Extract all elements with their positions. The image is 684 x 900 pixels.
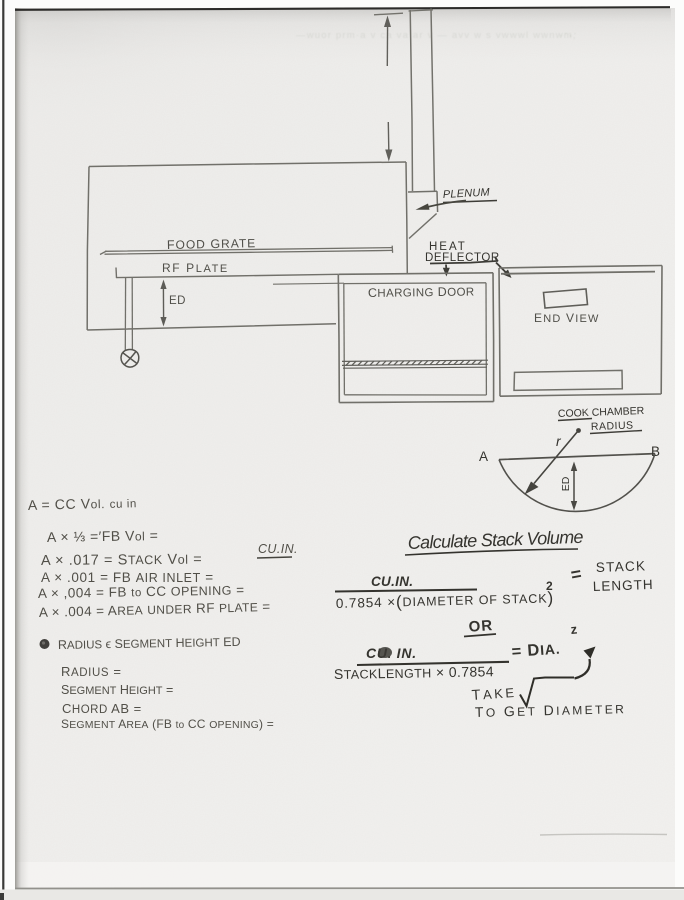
svg-text:2: 2	[546, 579, 553, 593]
svg-text:LENGTH: LENGTH	[593, 577, 654, 594]
svg-text:CHARGING DOOR: CHARGING DOOR	[368, 285, 475, 300]
svg-text:RF PLATE: RF PLATE	[162, 261, 229, 275]
svg-text:A: A	[479, 449, 488, 464]
svg-text:B: B	[651, 444, 660, 459]
svg-text:STACK: STACK	[596, 558, 647, 575]
svg-text:END VIEW: END VIEW	[534, 311, 600, 325]
svg-text:RADIUS =: RADIUS =	[61, 664, 122, 679]
svg-text:PLENUM: PLENUM	[443, 187, 491, 201]
svg-text:A × ⅓ =′FB Vol =: A × ⅓ =′FB Vol =	[47, 527, 159, 545]
svg-text:A × .017 = STACK Vol =: A × .017 = STACK Vol =	[41, 552, 203, 569]
svg-text:CHORD AB =: CHORD AB =	[62, 701, 142, 716]
svg-text:CU.IN.: CU.IN.	[371, 574, 413, 589]
svg-text:FOOD GRATE: FOOD GRATE	[167, 236, 257, 252]
svg-text:A × .001 = FB AIR INLET =: A × .001 = FB AIR INLET =	[41, 570, 214, 585]
svg-text:CU.IN.: CU.IN.	[258, 542, 298, 556]
svg-text:—wuor prm·a v ca va ar v — av: —wuor prm·a v ca va ar v — avv w s vwwwl…	[296, 30, 577, 41]
svg-text:SEGMENT HEIGHT =: SEGMENT HEIGHT =	[61, 683, 173, 697]
svg-text:ED: ED	[169, 295, 186, 307]
svg-text:. · , ·: . · , ·	[560, 29, 576, 38]
svg-text:OR: OR	[468, 617, 494, 636]
svg-text:SEGMENT AREA (FB to CC OPENIN: SEGMENT AREA (FB to CC OPENING) =	[61, 717, 274, 731]
svg-text:ED: ED	[560, 476, 572, 491]
